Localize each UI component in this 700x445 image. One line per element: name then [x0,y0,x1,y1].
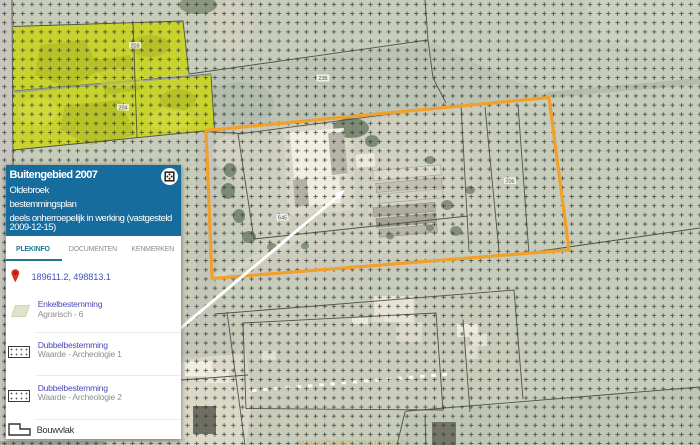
svg-text:204: 204 [118,105,127,111]
svg-text:206: 206 [505,179,514,185]
svg-text:235: 235 [318,76,327,82]
svg-text:645: 645 [278,215,287,221]
svg-text:203: 203 [130,43,139,49]
svg-text:www.huismanruimte.nl: www.huismanruimte.nl [298,438,409,445]
